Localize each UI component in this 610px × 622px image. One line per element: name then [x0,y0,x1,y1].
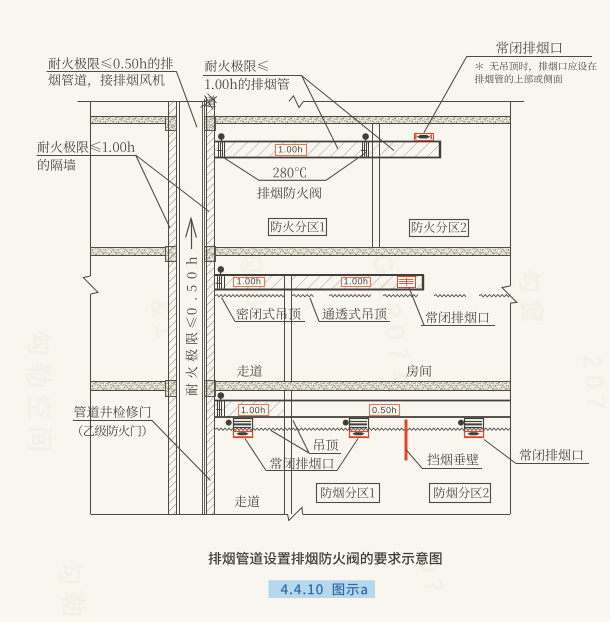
svg-text:勾勒空间: 勾勒空间 [24,330,54,458]
svg-text:207: 207 [577,353,610,417]
svg-text:勾窗: 勾窗 [514,268,547,330]
